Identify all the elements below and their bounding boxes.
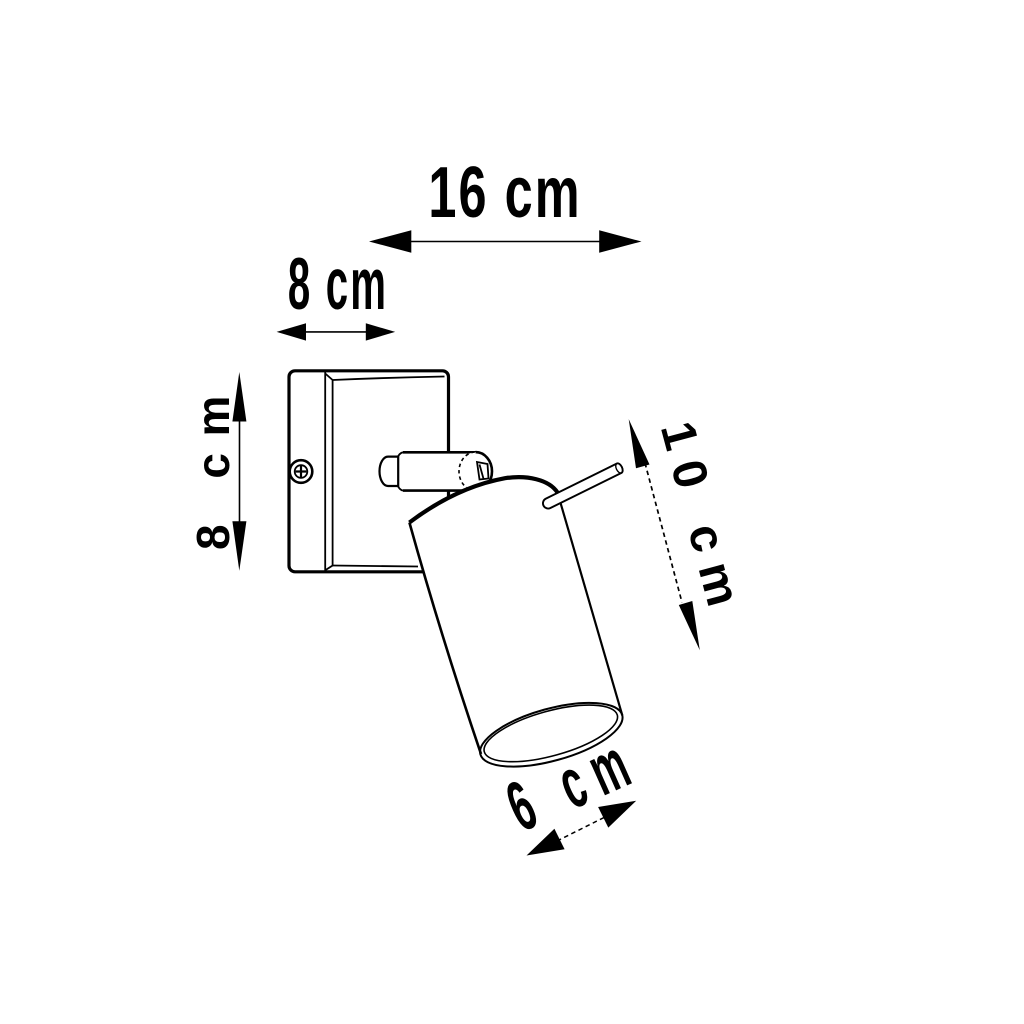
svg-text:8 cm: 8 cm (187, 379, 239, 550)
svg-text:16 cm: 16 cm (428, 153, 581, 233)
svg-text:8 cm: 8 cm (288, 245, 388, 326)
